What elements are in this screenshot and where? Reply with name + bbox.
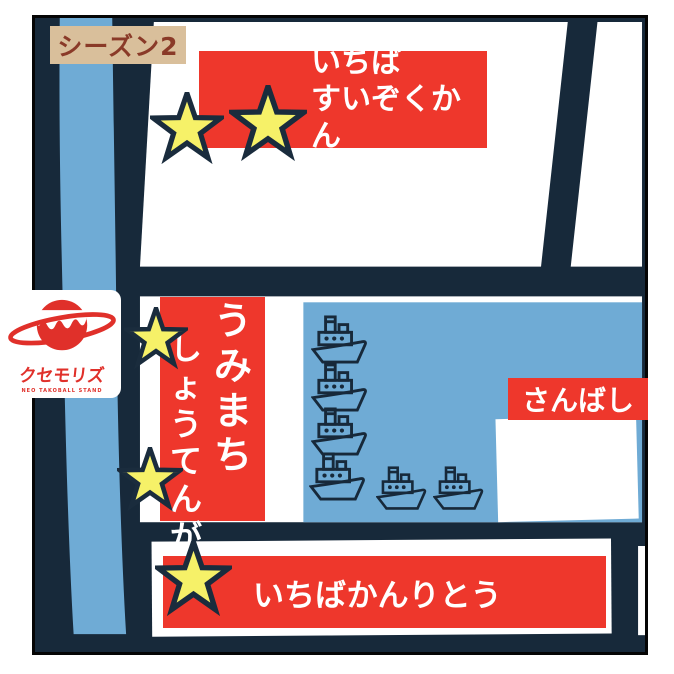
aquarium-label-line2: すいぞくかん <box>311 81 487 155</box>
banner-pier: さんばし <box>508 378 648 420</box>
boat-icon <box>309 452 367 502</box>
boat-icon <box>311 407 369 457</box>
boat-icon <box>311 315 369 365</box>
brand-logo: クセモリズ NEO TAKOBALL STAND <box>3 290 121 398</box>
aquarium-label-line1: いちば <box>311 44 401 81</box>
season-label: シーズン2 <box>50 26 186 64</box>
block-bottom-right-sliver <box>638 546 645 635</box>
boat-icon <box>311 363 369 413</box>
star-icon <box>124 307 188 371</box>
pier-platform <box>495 416 638 523</box>
star-icon <box>150 92 224 166</box>
shopping-street-label-line1: うみまち <box>214 299 252 478</box>
brand-tagline: NEO TAKOBALL STAND <box>3 388 121 394</box>
brand-name: クセモリズ <box>2 360 123 386</box>
star-icon <box>229 85 307 163</box>
star-icon <box>155 541 232 618</box>
planet-icon <box>6 293 118 359</box>
map-page: シーズン2 いちば すいぞくかん うみまち しょうてんがい さんばし いちばかん… <box>0 0 674 674</box>
block-top-right <box>571 22 642 267</box>
boat-icon <box>376 466 428 511</box>
star-icon <box>117 447 183 513</box>
boat-icon <box>433 466 485 511</box>
